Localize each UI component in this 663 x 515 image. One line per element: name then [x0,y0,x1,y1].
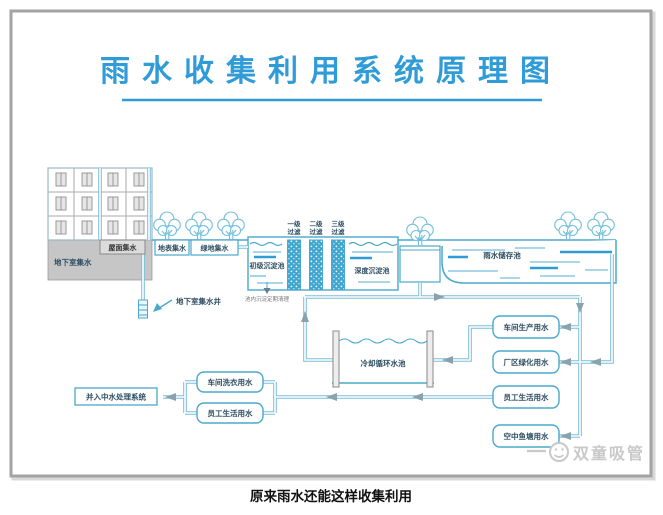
basement-label: 地下室集水 [54,257,92,267]
storage-pool: 雨水储存池 [442,240,616,283]
filter1-line2: 过滤 [288,227,302,236]
filter2-line1: 二级 [310,219,324,228]
usage-box-label: 厂区绿化用水 [504,357,549,367]
filter-columns [288,240,345,290]
filter3-line1: 三级 [332,219,346,228]
filter-labels: 一级 过滤 二级 过滤 三级 过滤 [288,219,346,236]
page-title: 雨水收集利用系统原理图 [100,54,562,88]
cooling-pool-label: 冷却循环水池 [361,358,406,368]
usage-box-label: 车间生产用水 [504,322,549,332]
tank-note: 池内沉淀定期清理 [245,295,290,303]
laundry-water-label: 车间洗衣用水 [208,377,253,387]
filter1-line1: 一级 [288,219,302,228]
roof-collection-label: 屋面集水 [109,243,138,252]
usage-box-label: 空中鱼塘用水 [504,431,549,441]
rainwater-system-diagram: 雨水收集利用系统原理图 地下室集水 初级沉淀池 [0,0,663,515]
deep-tank-label: 深度沉淀池 [355,266,390,275]
well-label: 地下室集水井 [176,296,221,306]
weir-structure [400,246,440,282]
green-collection-label: 绿地集水 [201,244,230,253]
treatment-system-label: 并入中水处理系统 [86,392,146,402]
smiley-logo-icon [550,443,568,461]
caption: 原来雨水还能这样收集利用 [250,488,412,504]
storage-pool-label: 雨水储存池 [483,250,521,260]
surface-collection-label: 地表集水 [158,244,187,253]
staff-water-label: 员工生活用水 [208,408,253,418]
filter2-line2: 过滤 [310,227,324,236]
primary-tank-label: 初级沉淀池 [250,261,285,270]
collection-boxes: 屋面集水 地表集水 绿地集水 [100,240,238,255]
filter3-line2: 过滤 [332,227,346,236]
diagram-canvas: 雨水收集利用系统原理图 地下室集水 初级沉淀池 [0,0,663,515]
watermark-text: 双童吸管 [573,444,645,463]
usage-box-label: 员工生活用水 [504,392,549,402]
